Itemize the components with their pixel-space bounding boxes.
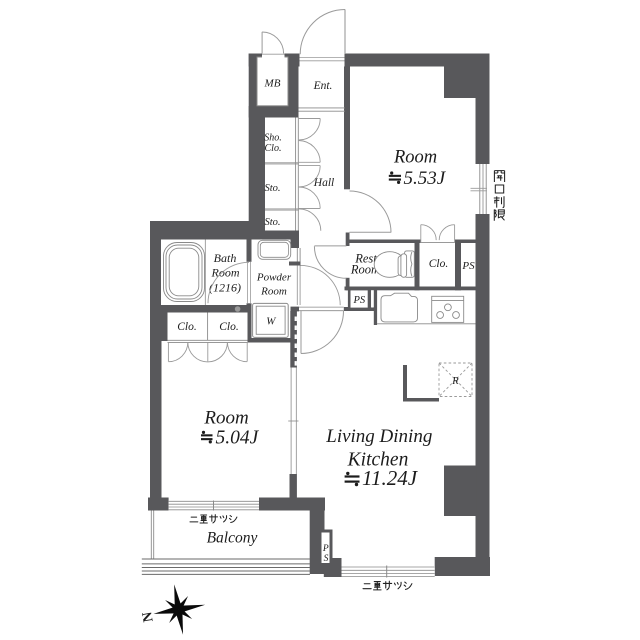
svg-text:Room: Room [393,148,437,168]
svg-text:Balcony: Balcony [207,530,258,547]
svg-text:Room: Room [203,408,248,429]
svg-text:Clo.: Clo. [429,258,449,270]
svg-text:Clo.: Clo. [219,321,239,333]
svg-text:Bath: Bath [214,251,237,265]
svg-text:P: P [322,544,329,554]
svg-text:W: W [266,316,276,328]
svg-text:Powder: Powder [256,272,292,284]
svg-text:Clo.: Clo. [177,321,197,333]
svg-text:S: S [324,554,329,564]
svg-text:Ent.: Ent. [313,80,333,92]
svg-text:5.04J: 5.04J [216,427,260,448]
svg-text:Room: Room [260,286,287,298]
svg-text:MB: MB [264,78,281,90]
svg-text:Sto.: Sto. [264,217,280,228]
svg-text:Hall: Hall [313,177,334,189]
svg-text:5.53J: 5.53J [404,168,447,189]
svg-text:Clo.: Clo. [265,143,282,154]
svg-text:PS: PS [352,295,365,306]
svg-text:11.24J: 11.24J [362,466,419,490]
svg-text:Living Dining: Living Dining [325,426,432,447]
svg-text:R: R [451,376,459,387]
svg-text:PS: PS [461,260,475,272]
svg-text:Sto.: Sto. [264,183,280,194]
svg-text:Room: Room [211,266,240,280]
svg-text:Sho.: Sho. [264,133,282,144]
